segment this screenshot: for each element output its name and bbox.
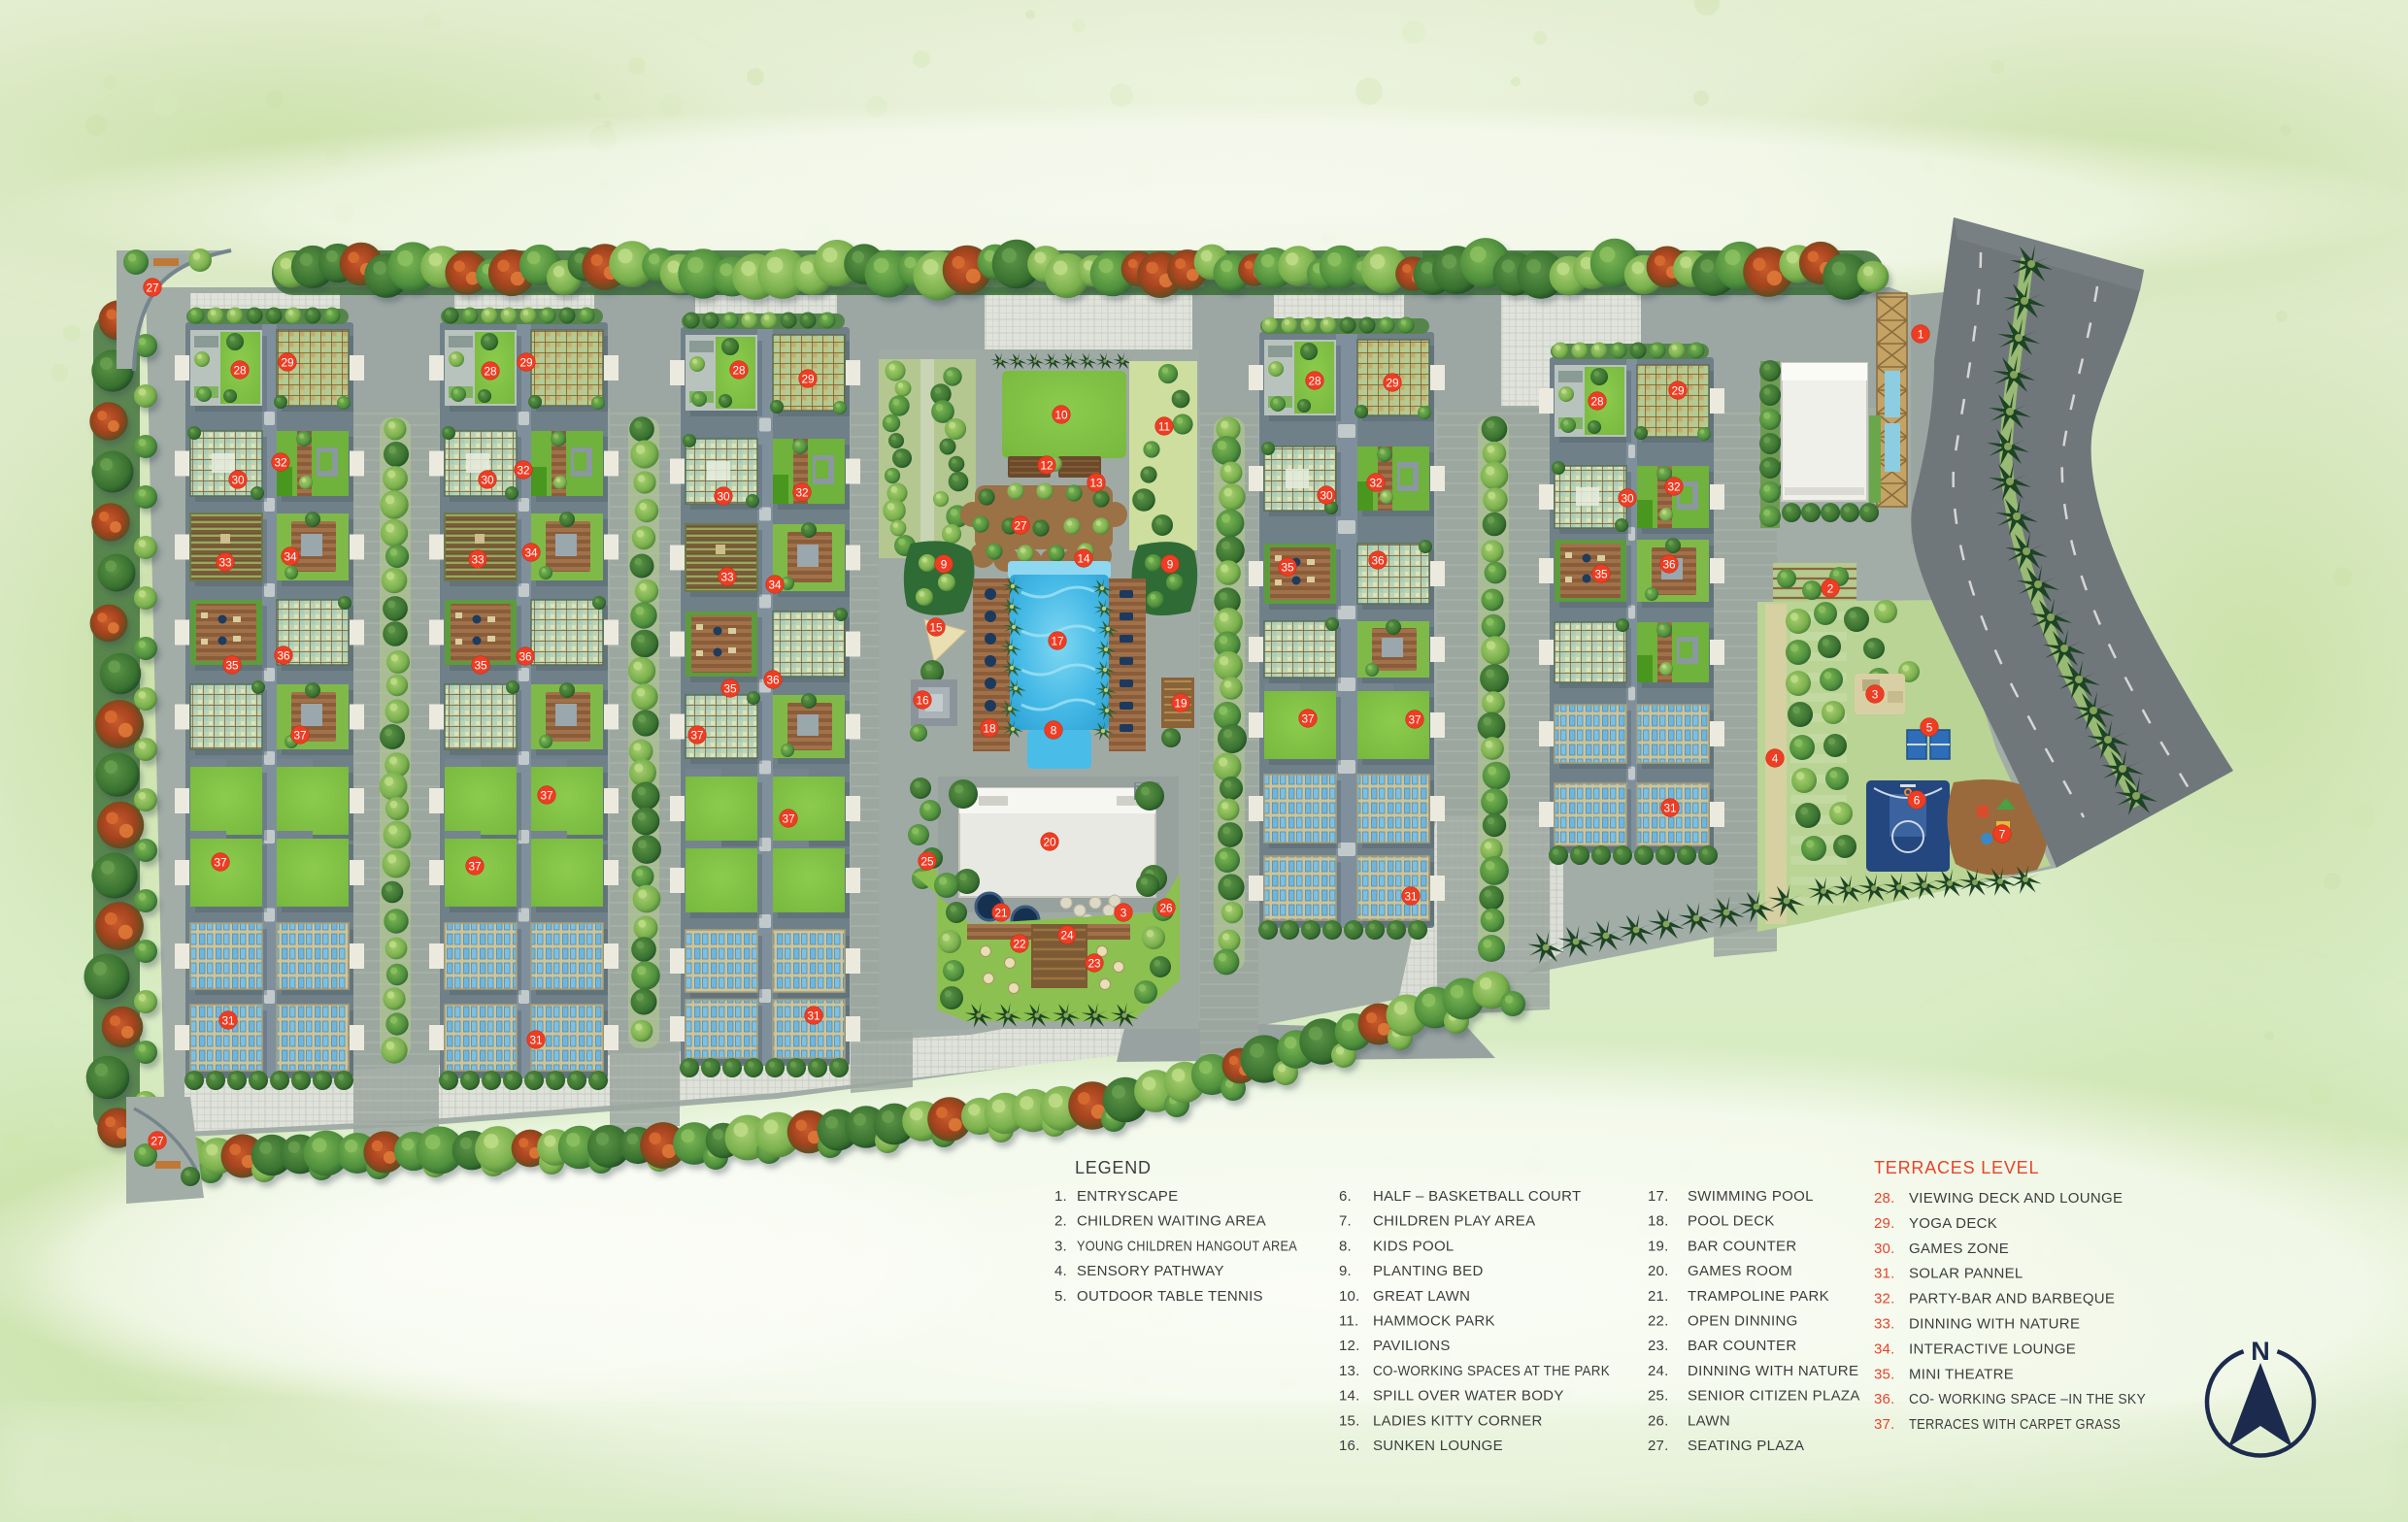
svg-text:SENIOR CITIZEN PLAZA: SENIOR CITIZEN PLAZA [1688, 1388, 1860, 1405]
svg-text:28.: 28. [1874, 1190, 1894, 1207]
svg-text:28: 28 [732, 364, 746, 378]
svg-text:12: 12 [1040, 459, 1053, 473]
svg-text:27: 27 [150, 1135, 163, 1148]
svg-text:22: 22 [1013, 938, 1025, 951]
svg-text:33.: 33. [1874, 1316, 1894, 1333]
svg-text:24.: 24. [1648, 1363, 1668, 1379]
svg-text:15.: 15. [1339, 1412, 1359, 1429]
svg-text:TERRACES WITH CARPET GRASS: TERRACES WITH CARPET GRASS [1909, 1416, 2121, 1433]
svg-text:29: 29 [1386, 377, 1398, 390]
svg-text:28: 28 [233, 364, 247, 378]
svg-text:SPILL OVER WATER BODY: SPILL OVER WATER BODY [1373, 1388, 1564, 1405]
svg-text:20.: 20. [1648, 1263, 1668, 1279]
svg-text:32: 32 [274, 456, 286, 470]
svg-text:20: 20 [1043, 836, 1056, 849]
svg-text:SWIMMING POOL: SWIMMING POOL [1688, 1188, 1814, 1205]
svg-text:30: 30 [481, 474, 494, 487]
svg-text:SUNKEN LOUNGE: SUNKEN LOUNGE [1373, 1438, 1503, 1454]
svg-text:BAR COUNTER: BAR COUNTER [1688, 1238, 1796, 1254]
svg-text:MINI THEATRE: MINI THEATRE [1909, 1366, 2014, 1382]
svg-text:13: 13 [1089, 477, 1103, 490]
svg-text:6.: 6. [1339, 1188, 1352, 1205]
svg-text:32.: 32. [1874, 1291, 1894, 1307]
svg-text:29.: 29. [1874, 1215, 1894, 1232]
svg-text:37.: 37. [1874, 1416, 1894, 1433]
svg-text:TERRACES LEVEL: TERRACES LEVEL [1874, 1158, 2039, 1177]
svg-text:36.: 36. [1874, 1391, 1894, 1407]
svg-text:37: 37 [540, 789, 552, 803]
svg-text:34: 34 [768, 579, 782, 592]
svg-text:GAMES ROOM: GAMES ROOM [1688, 1263, 1792, 1279]
svg-text:5: 5 [1926, 721, 1933, 735]
svg-text:22.: 22. [1648, 1313, 1668, 1330]
svg-text:30.: 30. [1874, 1241, 1894, 1257]
svg-text:7.: 7. [1339, 1213, 1352, 1230]
svg-text:37: 37 [782, 812, 794, 826]
svg-text:3.: 3. [1054, 1238, 1067, 1254]
svg-text:VIEWING DECK AND LOUNGE: VIEWING DECK AND LOUNGE [1909, 1190, 2123, 1207]
svg-text:LAWN: LAWN [1688, 1412, 1730, 1429]
svg-text:5.: 5. [1054, 1288, 1067, 1305]
svg-text:4: 4 [1772, 752, 1779, 766]
svg-text:33: 33 [218, 556, 232, 570]
svg-text:30: 30 [231, 474, 245, 487]
svg-text:1: 1 [1918, 328, 1924, 342]
svg-text:KIDS POOL: KIDS POOL [1373, 1238, 1455, 1254]
svg-text:10: 10 [1054, 409, 1068, 422]
svg-text:3: 3 [1872, 688, 1879, 702]
svg-text:34: 34 [524, 546, 538, 560]
svg-text:36: 36 [766, 674, 780, 687]
svg-text:28: 28 [1308, 375, 1321, 388]
svg-text:TRAMPOLINE PARK: TRAMPOLINE PARK [1688, 1288, 1829, 1305]
svg-text:26.: 26. [1648, 1412, 1668, 1429]
svg-text:14: 14 [1077, 552, 1090, 566]
svg-text:31: 31 [807, 1009, 819, 1023]
svg-text:37: 37 [1408, 713, 1421, 727]
svg-text:PAVILIONS: PAVILIONS [1373, 1338, 1451, 1354]
svg-text:GAMES ZONE: GAMES ZONE [1909, 1241, 2009, 1257]
svg-text:33: 33 [471, 553, 485, 567]
svg-text:3: 3 [1120, 907, 1127, 920]
svg-text:PARTY-BAR AND BARBEQUE: PARTY-BAR AND BARBEQUE [1909, 1291, 2115, 1307]
svg-text:32: 32 [795, 486, 808, 500]
svg-text:DINNING WITH NATURE: DINNING WITH NATURE [1688, 1363, 1858, 1379]
svg-text:HALF – BASKETBALL COURT: HALF – BASKETBALL COURT [1373, 1188, 1581, 1205]
svg-text:8: 8 [1051, 724, 1057, 738]
svg-text:8.: 8. [1339, 1238, 1352, 1254]
svg-text:1.: 1. [1054, 1188, 1067, 1205]
svg-text:31: 31 [529, 1034, 542, 1047]
svg-text:11.: 11. [1339, 1313, 1358, 1330]
svg-text:N: N [2251, 1337, 2270, 1366]
svg-text:29: 29 [801, 373, 814, 386]
svg-text:29: 29 [519, 356, 532, 370]
svg-text:18: 18 [983, 722, 996, 736]
svg-text:26: 26 [1159, 902, 1173, 915]
svg-text:23: 23 [1087, 957, 1101, 971]
svg-text:25: 25 [920, 855, 934, 869]
svg-text:29: 29 [281, 356, 293, 370]
svg-text:9.: 9. [1339, 1263, 1352, 1279]
svg-text:INTERACTIVE LOUNGE: INTERACTIVE LOUNGE [1909, 1340, 2076, 1357]
svg-text:27: 27 [1014, 519, 1026, 533]
svg-text:BAR COUNTER: BAR COUNTER [1688, 1338, 1796, 1354]
svg-text:30: 30 [1320, 489, 1333, 503]
svg-text:37: 37 [690, 729, 703, 743]
svg-text:OUTDOOR TABLE TENNIS: OUTDOOR TABLE TENNIS [1077, 1288, 1263, 1305]
svg-text:37: 37 [468, 860, 481, 874]
svg-text:10.: 10. [1339, 1288, 1359, 1305]
svg-text:37: 37 [214, 856, 226, 870]
svg-text:35: 35 [225, 659, 239, 673]
svg-text:30: 30 [1621, 492, 1634, 506]
svg-text:PLANTING BED: PLANTING BED [1373, 1263, 1484, 1279]
svg-text:32: 32 [1667, 480, 1680, 494]
svg-text:34: 34 [284, 550, 297, 564]
svg-text:35: 35 [1281, 561, 1294, 575]
svg-text:CHILDREN PLAY AREA: CHILDREN PLAY AREA [1373, 1213, 1535, 1230]
svg-text:32: 32 [1369, 477, 1382, 490]
svg-text:36: 36 [1662, 558, 1676, 572]
svg-text:YOGA DECK: YOGA DECK [1909, 1215, 1997, 1232]
svg-text:37: 37 [1301, 712, 1314, 726]
svg-text:2.: 2. [1054, 1213, 1067, 1230]
svg-text:OPEN DINNING: OPEN DINNING [1688, 1313, 1798, 1330]
svg-text:28: 28 [1590, 395, 1604, 409]
svg-text:13.: 13. [1339, 1363, 1359, 1379]
svg-text:31.: 31. [1874, 1266, 1894, 1282]
svg-text:21.: 21. [1648, 1288, 1668, 1305]
svg-text:16.: 16. [1339, 1438, 1359, 1454]
svg-text:35: 35 [723, 682, 737, 696]
svg-text:15: 15 [929, 621, 943, 635]
svg-text:19: 19 [1174, 697, 1187, 711]
svg-text:CO- WORKING SPACE –IN THE SKY: CO- WORKING SPACE –IN THE SKY [1909, 1391, 2146, 1407]
svg-text:37: 37 [293, 729, 306, 743]
svg-text:36: 36 [1371, 554, 1385, 568]
svg-text:LADIES KITTY CORNER: LADIES KITTY CORNER [1373, 1412, 1543, 1429]
svg-text:32: 32 [517, 464, 529, 478]
svg-text:HAMMOCK PARK: HAMMOCK PARK [1373, 1313, 1495, 1330]
svg-text:31: 31 [221, 1014, 234, 1028]
svg-text:35: 35 [1594, 568, 1608, 581]
svg-text:19.: 19. [1648, 1238, 1668, 1254]
svg-text:SOLAR PANNEL: SOLAR PANNEL [1909, 1266, 2023, 1282]
svg-text:ENTRYSCAPE: ENTRYSCAPE [1077, 1188, 1178, 1205]
svg-text:17: 17 [1051, 635, 1063, 648]
svg-text:21: 21 [994, 907, 1007, 920]
svg-text:27.: 27. [1648, 1438, 1668, 1454]
svg-text:35: 35 [474, 659, 487, 673]
svg-text:36: 36 [277, 649, 290, 663]
svg-text:GREAT LAWN: GREAT LAWN [1373, 1288, 1470, 1305]
svg-text:34.: 34. [1874, 1340, 1894, 1357]
svg-text:2: 2 [1827, 582, 1834, 596]
svg-text:12.: 12. [1339, 1338, 1359, 1354]
svg-text:29: 29 [1671, 384, 1684, 398]
svg-text:17.: 17. [1648, 1188, 1668, 1205]
svg-text:14.: 14. [1339, 1388, 1359, 1405]
svg-text:23.: 23. [1648, 1338, 1668, 1354]
svg-text:6: 6 [1914, 794, 1921, 808]
svg-text:31: 31 [1663, 802, 1676, 815]
svg-text:CHILDREN WAITING AREA: CHILDREN WAITING AREA [1077, 1213, 1266, 1230]
svg-text:36: 36 [518, 650, 532, 664]
svg-text:POOL DECK: POOL DECK [1688, 1213, 1775, 1230]
svg-text:SEATING PLAZA: SEATING PLAZA [1688, 1438, 1804, 1454]
svg-text:24: 24 [1060, 929, 1074, 943]
svg-text:28: 28 [484, 365, 497, 379]
svg-text:YOUNG CHILDREN HANGOUT AREA: YOUNG CHILDREN HANGOUT AREA [1077, 1238, 1297, 1254]
svg-text:9: 9 [941, 558, 948, 572]
svg-text:25.: 25. [1648, 1388, 1668, 1405]
svg-text:7: 7 [1999, 828, 2006, 842]
svg-text:LEGEND: LEGEND [1075, 1158, 1152, 1177]
svg-text:11: 11 [1158, 420, 1170, 434]
svg-text:DINNING WITH NATURE: DINNING WITH NATURE [1909, 1316, 2080, 1333]
svg-text:16: 16 [916, 694, 929, 708]
svg-text:31: 31 [1404, 890, 1417, 904]
svg-text:33: 33 [720, 571, 734, 584]
svg-text:35.: 35. [1874, 1366, 1894, 1382]
svg-text:18.: 18. [1648, 1213, 1668, 1230]
svg-text:SENSORY PATHWAY: SENSORY PATHWAY [1077, 1263, 1224, 1279]
svg-text:4.: 4. [1054, 1263, 1067, 1279]
svg-text:CO-WORKING SPACES AT THE PARK: CO-WORKING SPACES AT THE PARK [1373, 1363, 1610, 1379]
svg-text:27: 27 [146, 281, 158, 295]
svg-text:9: 9 [1167, 558, 1174, 572]
svg-text:30: 30 [717, 490, 730, 504]
